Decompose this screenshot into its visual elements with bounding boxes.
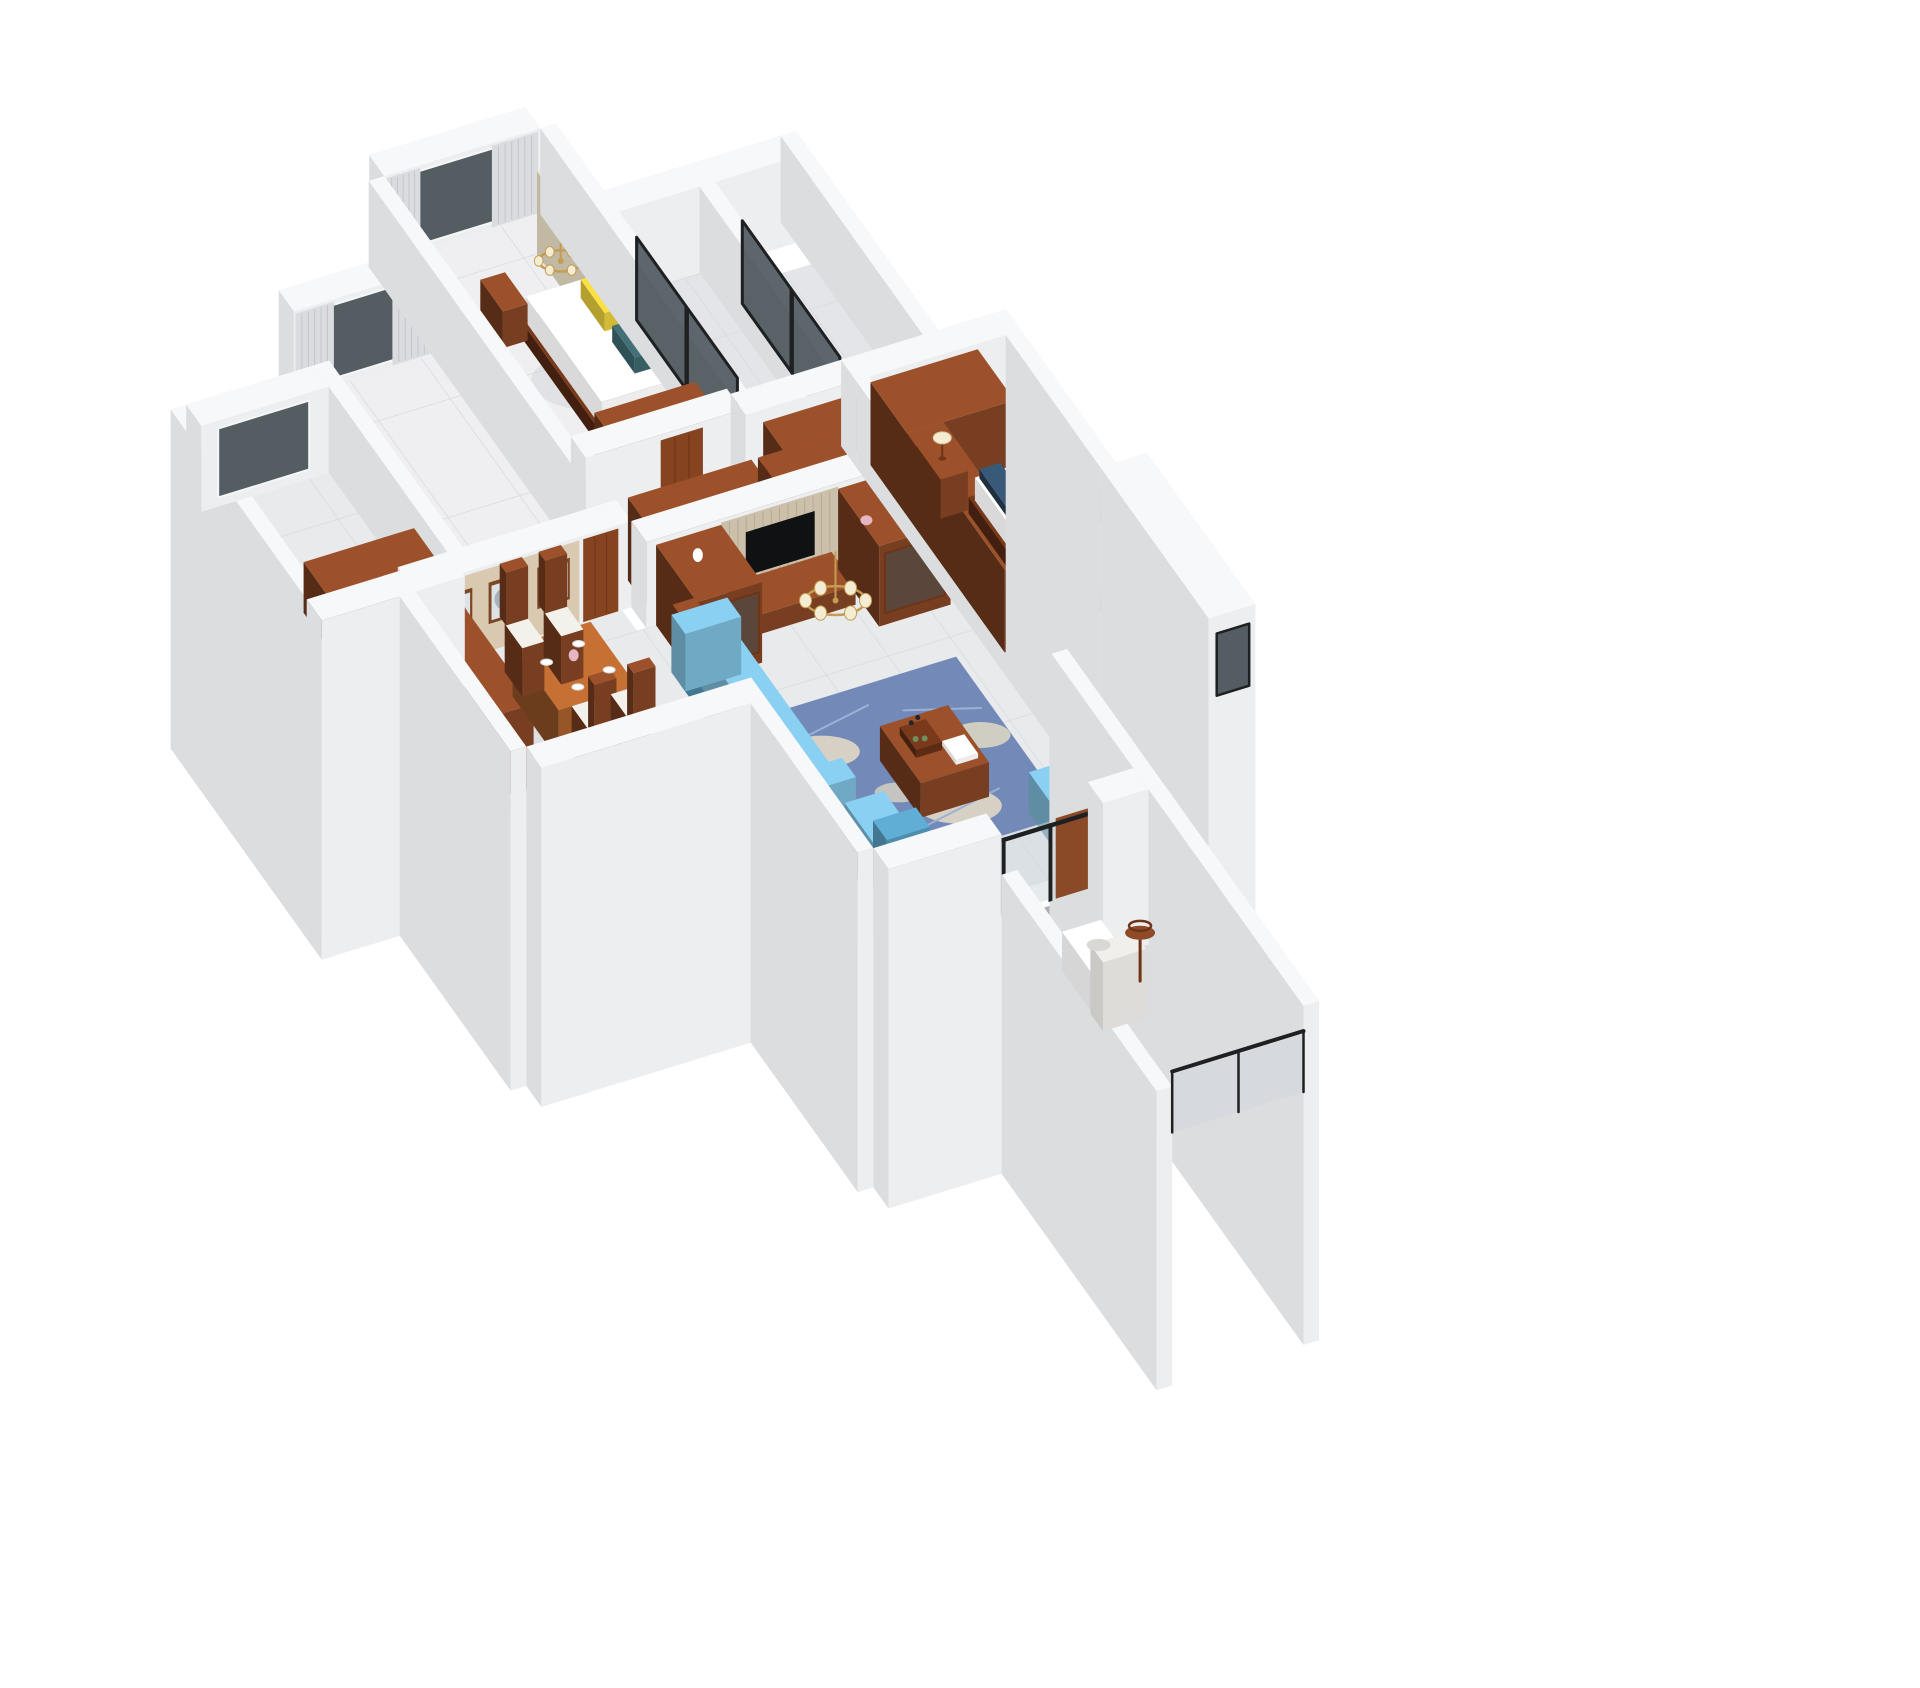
sofa-arm-north xyxy=(671,598,741,692)
tea-bottle-1 xyxy=(909,720,914,725)
orchid-plant xyxy=(860,515,872,525)
dining-south-facade xyxy=(526,677,766,1107)
dining-chair-2-back xyxy=(539,545,567,614)
dining-plate-2 xyxy=(573,641,585,647)
dining-plate-3 xyxy=(572,684,584,690)
tea-cup-2 xyxy=(922,735,928,741)
dining-flower-vase xyxy=(569,649,579,661)
tea-cup-1 xyxy=(913,736,919,742)
dining-plate-1 xyxy=(541,659,553,665)
bedroom3-curtain-right xyxy=(492,132,538,228)
slider-frame-bar-2 xyxy=(1049,823,1053,902)
master-bay-window-glass xyxy=(1217,624,1250,696)
dining-door xyxy=(583,529,618,623)
dining-plate-4 xyxy=(603,667,615,673)
dining-chair-1-back xyxy=(500,557,528,626)
bathroom1-glass-bar xyxy=(685,304,689,393)
vase-left xyxy=(693,548,703,562)
floorplan-render xyxy=(0,0,1920,1688)
balcony-armchair-cushion xyxy=(1087,939,1111,951)
tea-bottle-2 xyxy=(915,715,920,720)
living-south-wall xyxy=(873,813,1001,1208)
bathroom2-glass-bar xyxy=(790,287,794,376)
scene-svg xyxy=(0,0,1920,1688)
